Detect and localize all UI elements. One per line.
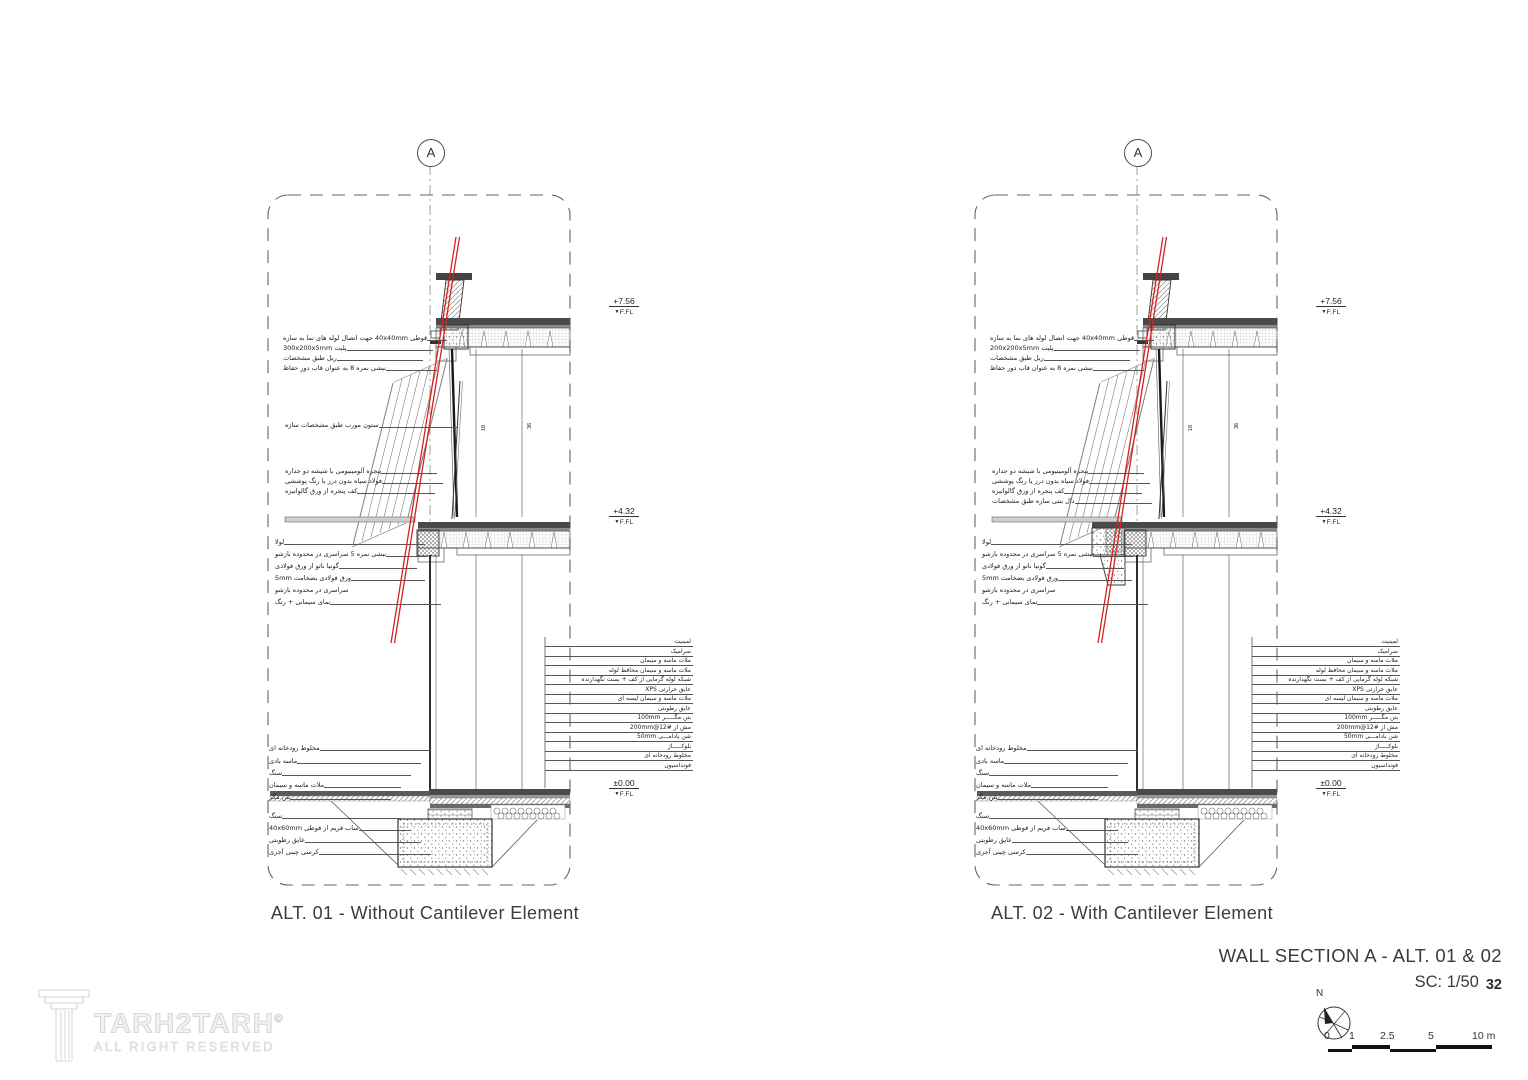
floor-assembly-row: شبکه لوله گرمایی از کف + بست نگهدارنده (545, 675, 693, 685)
dimension-label: 36 (1234, 423, 1240, 429)
dimension-label: 36 (527, 423, 533, 429)
annotation-label: ساب فریم از قوطی 40x60mm (976, 824, 1066, 832)
drawing-sheet: { "title_block": { "title": "WALL SECTIO… (0, 0, 1528, 1080)
annotation-label: مخلوط رودخانه ای (976, 744, 1027, 752)
annotation-label: کرسی چینی آجری (269, 848, 319, 856)
annotation-row: لولا (275, 537, 425, 546)
dimension-label: 18 (481, 425, 487, 431)
annotation-row: کرسی چینی آجری (269, 847, 431, 856)
floor-assembly-row: عایق رطوبتی (545, 704, 693, 714)
annotation-label: کف پنجره از ورق گالوانیزه (285, 487, 357, 495)
floor-assembly-row: بتن مگـــــر 100mm (545, 713, 693, 723)
annotation-label: فولاد سیاه بدون درز با رنگ پوششی (285, 477, 382, 485)
floor-assembly-row: مخلوط رودخانه ای (545, 751, 693, 761)
annotation-row: قوطی 40x40mm جهت اتصال لوله های نما به س… (283, 333, 447, 342)
annotation-row: پلیت 300x200x5mm (283, 343, 433, 352)
annotation-row: ستون مورب طبق مشخصات سازه (285, 420, 457, 429)
annotation-row: نمای سیمانی + رنگ (275, 597, 441, 606)
annotation-row: قوطی 40x40mm جهت اتصال لوله های نما به س… (990, 333, 1154, 342)
annotation-label: عایق رطوبتی (269, 836, 305, 844)
annotation-row: گونیا ناتو از ورق فولادی (982, 561, 1124, 570)
annotation-label: سنگ (269, 812, 282, 820)
annotation-label: ساب فریم از قوطی 40x60mm (269, 824, 359, 832)
annotation-row: سنگ (976, 811, 1108, 820)
annotation-label: ملات ماسه و سیمان (269, 781, 324, 789)
scale-bar-label: 0 (1324, 1030, 1330, 1042)
elevation-marker: +4.32 ▼F.FL (593, 501, 655, 526)
title-block: WALL SECTION A - ALT. 01 & 02 SC: 1/5032 (1219, 945, 1502, 992)
annotation-label: ریل طبق مشخصات (990, 354, 1044, 362)
floor-assembly-row: فونداسیون (545, 761, 693, 771)
annotation-row: ماسه بادی (976, 756, 1128, 765)
annotation-row: گونیا ناتو از ورق فولادی (275, 561, 417, 570)
elevation-marker: +7.56 ▼F.FL (1300, 291, 1362, 316)
scale-text: SC: 1/50 (1415, 973, 1479, 991)
annotation-label: سراسری در محدوده بازشو (275, 586, 348, 594)
annotation-row: عایق رطوبتی (269, 835, 421, 844)
annotation-label: پنجره آلومینیومی با شیشه دو جداره (285, 467, 381, 475)
page-number: 32 (1486, 977, 1502, 993)
section-marker: A (1124, 139, 1152, 167)
annotation-row: بتن مگر (976, 792, 1098, 801)
floor-assembly-row: ملات ماسه و سیمان (545, 656, 693, 666)
annotation-row: کف پنجره از ورق گالوانیزه (285, 486, 435, 495)
annotation-row: سراسری در محدوده بازشو (982, 585, 1140, 594)
annotation-row: سنگ (976, 768, 1118, 777)
annotation-label: بتن مگر (269, 793, 290, 801)
annotation-label: سنگ (269, 769, 282, 777)
annotation-label: دال بتنی سازه طبق مشخصات (992, 497, 1075, 505)
elevation-marker: ±0.00 ▼F.FL (1300, 773, 1362, 798)
scale-bar-label: 2.5 (1380, 1030, 1395, 1042)
floor-assembly-row: سرامیک (545, 647, 693, 657)
floor-assembly-row: شن بادامـــی 50mm (545, 732, 693, 742)
annotation-row: فولاد سیاه بدون درز یا رنگ پوششی (992, 476, 1150, 485)
annotation-row: مخلوط رودخانه ای (269, 743, 431, 752)
annotation-label: ماسه بادی (976, 757, 1004, 765)
floor-assembly-row: عایق حرارتی XPS (1252, 685, 1400, 695)
annotation-label: قوطی 40x40mm جهت اتصال لوله های نما به س… (283, 334, 427, 342)
annotation-row: سنگ (269, 811, 401, 820)
annotation-label: لولا (982, 538, 991, 546)
annotation-row: سنگ (269, 768, 411, 777)
annotation-row: فولاد سیاه بدون درز با رنگ پوششی (285, 476, 443, 485)
floor-assembly-row: ملات ماسه و سیمان لیسه ای (545, 694, 693, 704)
annotation-label: سنگ (976, 769, 989, 777)
annotation-label: نبشی نمره 8 به عنوان قاب دور حفاظ (990, 364, 1093, 372)
north-label: N (1316, 988, 1364, 999)
copyright-mark: © (274, 1013, 284, 1025)
annotation-label: نبشی نمره 5 سراسری در محدوده بازشو (275, 550, 386, 558)
caption-alt01: ALT. 01 - Without Cantilever Element (245, 903, 605, 924)
caption-alt02: ALT. 02 - With Cantilever Element (952, 903, 1312, 924)
annotation-row: دال بتنی سازه طبق مشخصات (992, 496, 1152, 505)
annotation-label: بتن مگر (976, 793, 997, 801)
floor-assembly-row: شن بادامـــی 50mm (1252, 732, 1400, 742)
floor-assembly-row: عایق حرارتی XPS (545, 685, 693, 695)
annotation-row: پلیت 200x200x5mm (990, 343, 1140, 352)
floor-assembly-row: شبکه لوله گرمایی از کف + بست نگهدارنده (1252, 675, 1400, 685)
annotation-label: سراسری در محدوده بازشو (982, 586, 1055, 594)
annotation-label: پلیت 300x200x5mm (283, 344, 347, 352)
annotation-row: نبشی نمره 8 به عنوان قاب دور حفاظ (283, 363, 437, 372)
floor-assembly-row: فونداسیون (1252, 761, 1400, 771)
floor-assembly-row: مش از #12@200mm (1252, 723, 1400, 733)
annotation-row: پنجره آلومینیومی با شیشه دو جداره (992, 466, 1144, 475)
annotation-label: پلیت 200x200x5mm (990, 344, 1054, 352)
floor-assembly-row: عایق رطوبتی (1252, 704, 1400, 714)
logo-tagline: ALL RIGHT RESERVED (94, 1040, 284, 1054)
logo-brand: TARH2TARH© (94, 1004, 284, 1038)
annotation-row: ورق فولادی بضخامت 5mm (982, 573, 1132, 582)
annotation-row: ملات ماسه و سیمان (269, 780, 401, 789)
floor-assembly-row: بلوکـــــاژ (545, 742, 693, 752)
elevation-marker: ±0.00 ▼F.FL (593, 773, 655, 798)
page-title: WALL SECTION A - ALT. 01 & 02 (1219, 945, 1502, 967)
annotation-label: کف پنجره از ورق گالوانیزه (992, 487, 1064, 495)
annotation-row: نبشی نمره 5 سراسری در محدوده بازشو (275, 549, 427, 558)
annotation-row: ساب فریم از قوطی 40x60mm (269, 823, 411, 832)
annotation-label: مخلوط رودخانه ای (269, 744, 320, 752)
annotation-row: پنجره آلومینیومی با شیشه دو جداره (285, 466, 437, 475)
annotation-label: نبشی نمره 5 سراسری در محدوده بازشو (982, 550, 1093, 558)
scale-bar-segments (1328, 1045, 1492, 1052)
annotation-label: گونیا ناتو از ورق فولادی (982, 562, 1046, 570)
annotation-label: ماسه بادی (269, 757, 297, 765)
annotation-label: ستون مورب طبق مشخصات سازه (285, 421, 379, 429)
elevation-marker: +4.32 ▼F.FL (1300, 501, 1362, 526)
floor-assembly-row: ملات ماسه و سیمان (1252, 656, 1400, 666)
floor-assembly-row: مخلوط رودخانه ای (1252, 751, 1400, 761)
scale-bar-label: 1 (1349, 1030, 1355, 1042)
annotation-label: ورق فولادی بضخامت 5mm (275, 574, 351, 582)
annotation-label: قوطی 40x40mm جهت اتصال لوله های نما به س… (990, 334, 1134, 342)
annotation-label: ورق فولادی بضخامت 5mm (982, 574, 1058, 582)
annotation-label: ریل طبق مشخصات (283, 354, 337, 362)
annotation-label: فولاد سیاه بدون درز یا رنگ پوششی (992, 477, 1089, 485)
annotation-label: نمای سیمانی + رنگ (275, 598, 330, 606)
floor-assembly-row: سرامیک (1252, 647, 1400, 657)
floor-assembly-row: مش از #12@200mm (545, 723, 693, 733)
annotation-label: لولا (275, 538, 284, 546)
scale-bar-label: 10 m (1472, 1030, 1495, 1042)
annotation-row: ماسه بادی (269, 756, 421, 765)
annotation-row: سراسری در محدوده بازشو (275, 585, 433, 594)
floor-assembly-row: بلوکـــــاژ (1252, 742, 1400, 752)
section-marker: A (417, 139, 445, 167)
annotation-label: سنگ (976, 812, 989, 820)
annotation-row: مخلوط رودخانه ای (976, 743, 1138, 752)
annotation-label: کرسی چینی آجری (976, 848, 1026, 856)
floor-assembly-row: ملات ماسه و سیمان محافظ لوله (1252, 666, 1400, 676)
floor-assembly-row: ملات ماسه و سیمان محافظ لوله (545, 666, 693, 676)
annotation-row: لولا (982, 537, 1132, 546)
annotation-row: نبشی نمره 8 به عنوان قاب دور حفاظ (990, 363, 1144, 372)
floor-assembly-row: بتن مگـــــر 100mm (1252, 713, 1400, 723)
annotation-row: ریل طبق مشخصات (283, 353, 423, 362)
annotation-row: ملات ماسه و سیمان (976, 780, 1108, 789)
annotation-row: عایق رطوبتی (976, 835, 1128, 844)
annotation-label: پنجره آلومینیومی با شیشه دو جداره (992, 467, 1088, 475)
section-panel-alt02: A قوطی 40x40mm جهت اتصال لوله های نما به… (952, 125, 1412, 937)
annotation-label: گونیا ناتو از ورق فولادی (275, 562, 339, 570)
annotation-label: نبشی نمره 8 به عنوان قاب دور حفاظ (283, 364, 386, 372)
annotation-row: ورق فولادی بضخامت 5mm (275, 573, 425, 582)
dimension-label: 18 (1188, 425, 1194, 431)
elevation-marker: +7.56 ▼F.FL (593, 291, 655, 316)
scale-bar: 0 1 2.5 5 10 m (1322, 1030, 1502, 1056)
annotation-row: بتن مگر (269, 792, 391, 801)
annotation-row: کف پنجره از ورق گالوانیزه (992, 486, 1142, 495)
annotation-row: ساب فریم از قوطی 40x60mm (976, 823, 1118, 832)
annotation-row: کرسی چینی آجری (976, 847, 1138, 856)
annotation-label: نمای سیمانی + رنگ (982, 598, 1037, 606)
floor-assembly-row: لمینیت (545, 637, 693, 647)
annotation-row: ریل طبق مشخصات (990, 353, 1130, 362)
section-panel-alt01: A قوطی 40x40mm جهت اتصال لوله های نما به… (245, 125, 705, 937)
annotation-row: نبشی نمره 5 سراسری در محدوده بازشو (982, 549, 1134, 558)
floor-assembly-row: ملات ماسه و سیمان لیسه ای (1252, 694, 1400, 704)
column-icon (36, 988, 94, 1066)
scale-bar-label: 5 (1428, 1030, 1434, 1042)
logo: TARH2TARH© ALL RIGHT RESERVED (36, 988, 284, 1066)
annotation-label: عایق رطوبتی (976, 836, 1012, 844)
floor-assembly-row: لمینیت (1252, 637, 1400, 647)
annotation-row: نمای سیمانی + رنگ (982, 597, 1148, 606)
annotation-label: ملات ماسه و سیمان (976, 781, 1031, 789)
